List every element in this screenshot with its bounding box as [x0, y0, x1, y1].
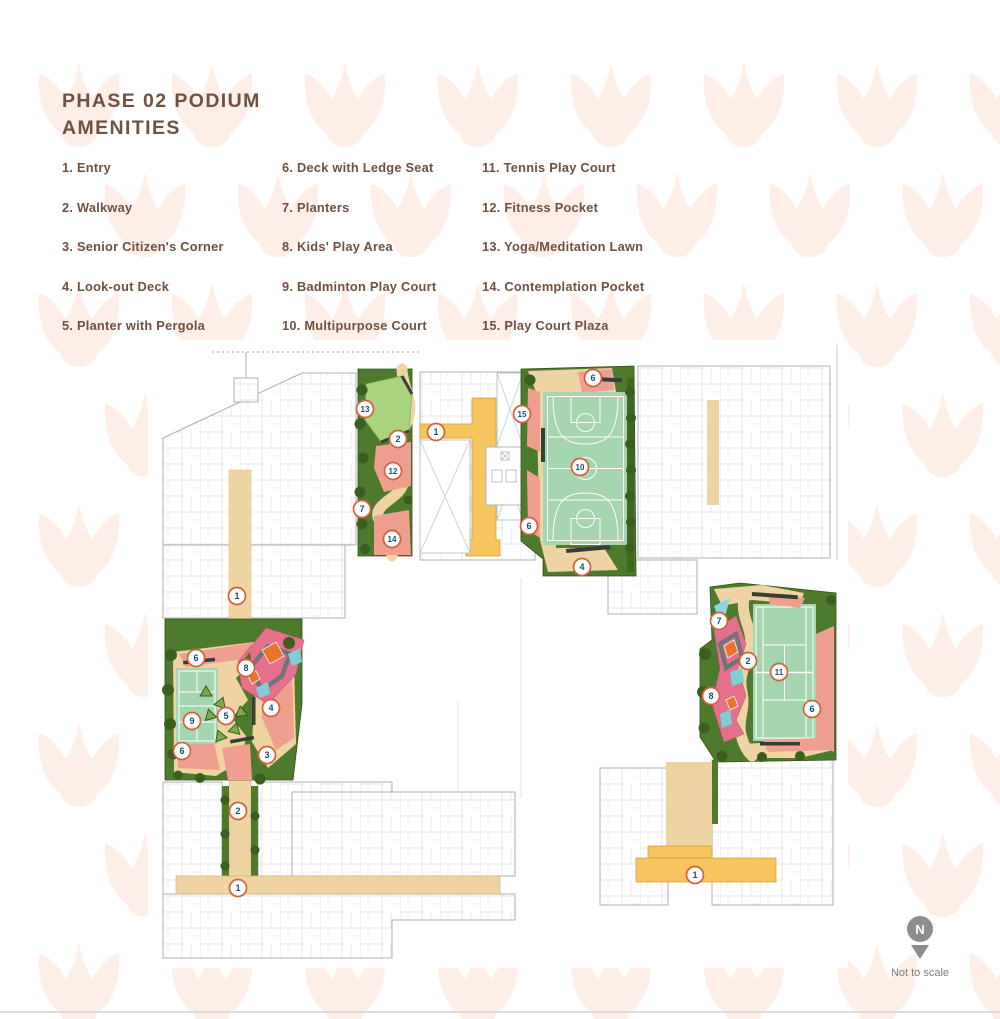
svg-text:2: 2 [235, 806, 240, 816]
tulip-watermark-icon [903, 172, 983, 257]
legend-item: 10. Multipurpose Court [282, 318, 477, 333]
svg-text:1: 1 [692, 870, 697, 880]
plan-marker-7: 7 [354, 501, 371, 518]
elevator-core [486, 447, 523, 505]
right-building-corridor [707, 400, 719, 505]
tulip-watermark-icon [39, 942, 119, 1019]
legend-item: 5. Planter with Pergola [62, 318, 277, 333]
plan-marker-11: 11 [771, 664, 788, 681]
svg-text:12: 12 [389, 467, 398, 476]
legend-item: 13. Yoga/Meditation Lawn [482, 239, 702, 254]
svg-text:4: 4 [579, 562, 584, 572]
plan-marker-9: 9 [184, 713, 201, 730]
plan-marker-8: 8 [703, 688, 720, 705]
svg-text:15: 15 [518, 410, 527, 419]
legend-item: 1. Entry [62, 160, 277, 175]
plan-marker-2: 2 [230, 803, 247, 820]
page-title-line1: PHASE 02 PODIUM [62, 88, 261, 115]
plan-marker-1: 1 [687, 867, 704, 884]
legend-item: 14. Contemplation Pocket [482, 279, 702, 294]
svg-text:2: 2 [395, 434, 400, 444]
not-to-scale-label: Not to scale [891, 967, 949, 979]
svg-text:2: 2 [745, 656, 750, 666]
svg-text:6: 6 [526, 521, 531, 531]
plan-marker-15: 15 [514, 406, 531, 423]
plan-marker-2: 2 [740, 653, 757, 670]
tulip-watermark-icon [770, 172, 850, 257]
title-pre: PHASE [62, 90, 136, 112]
site-plan: 132112714156106416854936217211861 [148, 340, 848, 968]
tulip-watermark-icon [837, 722, 917, 807]
plan-marker-8: 8 [238, 660, 255, 677]
tulip-watermark-icon [438, 62, 518, 147]
svg-text:6: 6 [179, 746, 184, 756]
svg-text:13: 13 [361, 405, 370, 414]
tulip-watermark-icon [970, 282, 1000, 367]
plan-marker-7: 7 [711, 613, 728, 630]
svg-text:14: 14 [388, 535, 397, 544]
legend-item: 12. Fitness Pocket [482, 200, 702, 215]
svg-text:1: 1 [235, 883, 240, 893]
north-indicator: N Not to scale [855, 903, 985, 985]
right-garden [697, 583, 836, 762]
page-title: PHASE 02 PODIUM AMENITIES [62, 88, 261, 142]
plan-marker-6: 6 [585, 370, 602, 387]
page-bottom-divider [0, 1011, 1000, 1013]
legend-item: 4. Look-out Deck [62, 279, 277, 294]
legend-column-1: 1. Entry2. Walkway3. Senior Citizen's Co… [62, 160, 277, 333]
plan-marker-6: 6 [804, 701, 821, 718]
legend-column-3: 11. Tennis Play Court12. Fitness Pocket1… [482, 160, 702, 333]
entry-strip-left [176, 876, 500, 894]
svg-text:10: 10 [576, 463, 585, 472]
svg-text:1: 1 [234, 591, 239, 601]
tulip-watermark-icon [970, 722, 1000, 807]
tulip-watermark-icon [837, 62, 917, 147]
plan-marker-1: 1 [230, 880, 247, 897]
legend-item: 2. Walkway [62, 200, 277, 215]
plan-marker-10: 10 [572, 459, 589, 476]
page-title-line2: AMENITIES [62, 115, 261, 142]
plan-marker-3: 3 [259, 747, 276, 764]
svg-text:8: 8 [243, 663, 248, 673]
tulip-watermark-icon [903, 612, 983, 697]
north-pin-icon: N [907, 916, 933, 959]
plan-marker-13: 13 [357, 401, 374, 418]
legend-item: 6. Deck with Ledge Seat [282, 160, 477, 175]
legend-item: 3. Senior Citizen's Corner [62, 239, 277, 254]
plan-marker-12: 12 [385, 463, 402, 480]
svg-text:5: 5 [223, 711, 228, 721]
svg-text:6: 6 [590, 373, 595, 383]
plan-marker-6: 6 [188, 650, 205, 667]
svg-text:3: 3 [264, 750, 269, 760]
legend-item: 8. Kids' Play Area [282, 239, 477, 254]
plan-marker-2: 2 [390, 431, 407, 448]
svg-text:6: 6 [193, 653, 198, 663]
tulip-watermark-icon [970, 502, 1000, 587]
title-phase-number: 02 [143, 90, 168, 112]
title-post: PODIUM [174, 90, 260, 112]
tulip-watermark-icon [571, 62, 651, 147]
tulip-watermark-icon [970, 62, 1000, 147]
plan-marker-6: 6 [174, 743, 191, 760]
svg-text:9: 9 [189, 716, 194, 726]
legend-item: 15. Play Court Plaza [482, 318, 702, 333]
legend-item: 9. Badminton Play Court [282, 279, 477, 294]
plan-marker-4: 4 [263, 700, 280, 717]
north-letter: N [915, 922, 924, 937]
corridor-right [666, 762, 712, 846]
plan-marker-4: 4 [574, 559, 591, 576]
svg-text:11: 11 [775, 668, 784, 677]
svg-text:4: 4 [268, 703, 273, 713]
entry-strip-right [636, 858, 776, 882]
legend-item: 11. Tennis Play Court [482, 160, 702, 175]
tulip-watermark-icon [39, 722, 119, 807]
legend-item: 7. Planters [282, 200, 477, 215]
tulip-watermark-icon [903, 392, 983, 477]
plan-marker-14: 14 [384, 531, 401, 548]
plan-marker-1: 1 [229, 588, 246, 605]
svg-text:6: 6 [809, 704, 814, 714]
tulip-watermark-icon [39, 502, 119, 587]
tulip-watermark-icon [837, 502, 917, 587]
left-amenity-strip [355, 369, 413, 556]
legend-column-2: 6. Deck with Ledge Seat7. Planters8. Kid… [282, 160, 477, 333]
plan-marker-5: 5 [218, 708, 235, 725]
svg-text:7: 7 [716, 616, 721, 626]
svg-text:1: 1 [433, 427, 438, 437]
svg-text:7: 7 [359, 504, 364, 514]
tulip-watermark-icon [704, 62, 784, 147]
tulip-watermark-icon [305, 62, 385, 147]
plan-marker-1: 1 [428, 424, 445, 441]
svg-text:8: 8 [708, 691, 713, 701]
tulip-watermark-icon [837, 282, 917, 367]
plan-marker-6: 6 [521, 518, 538, 535]
